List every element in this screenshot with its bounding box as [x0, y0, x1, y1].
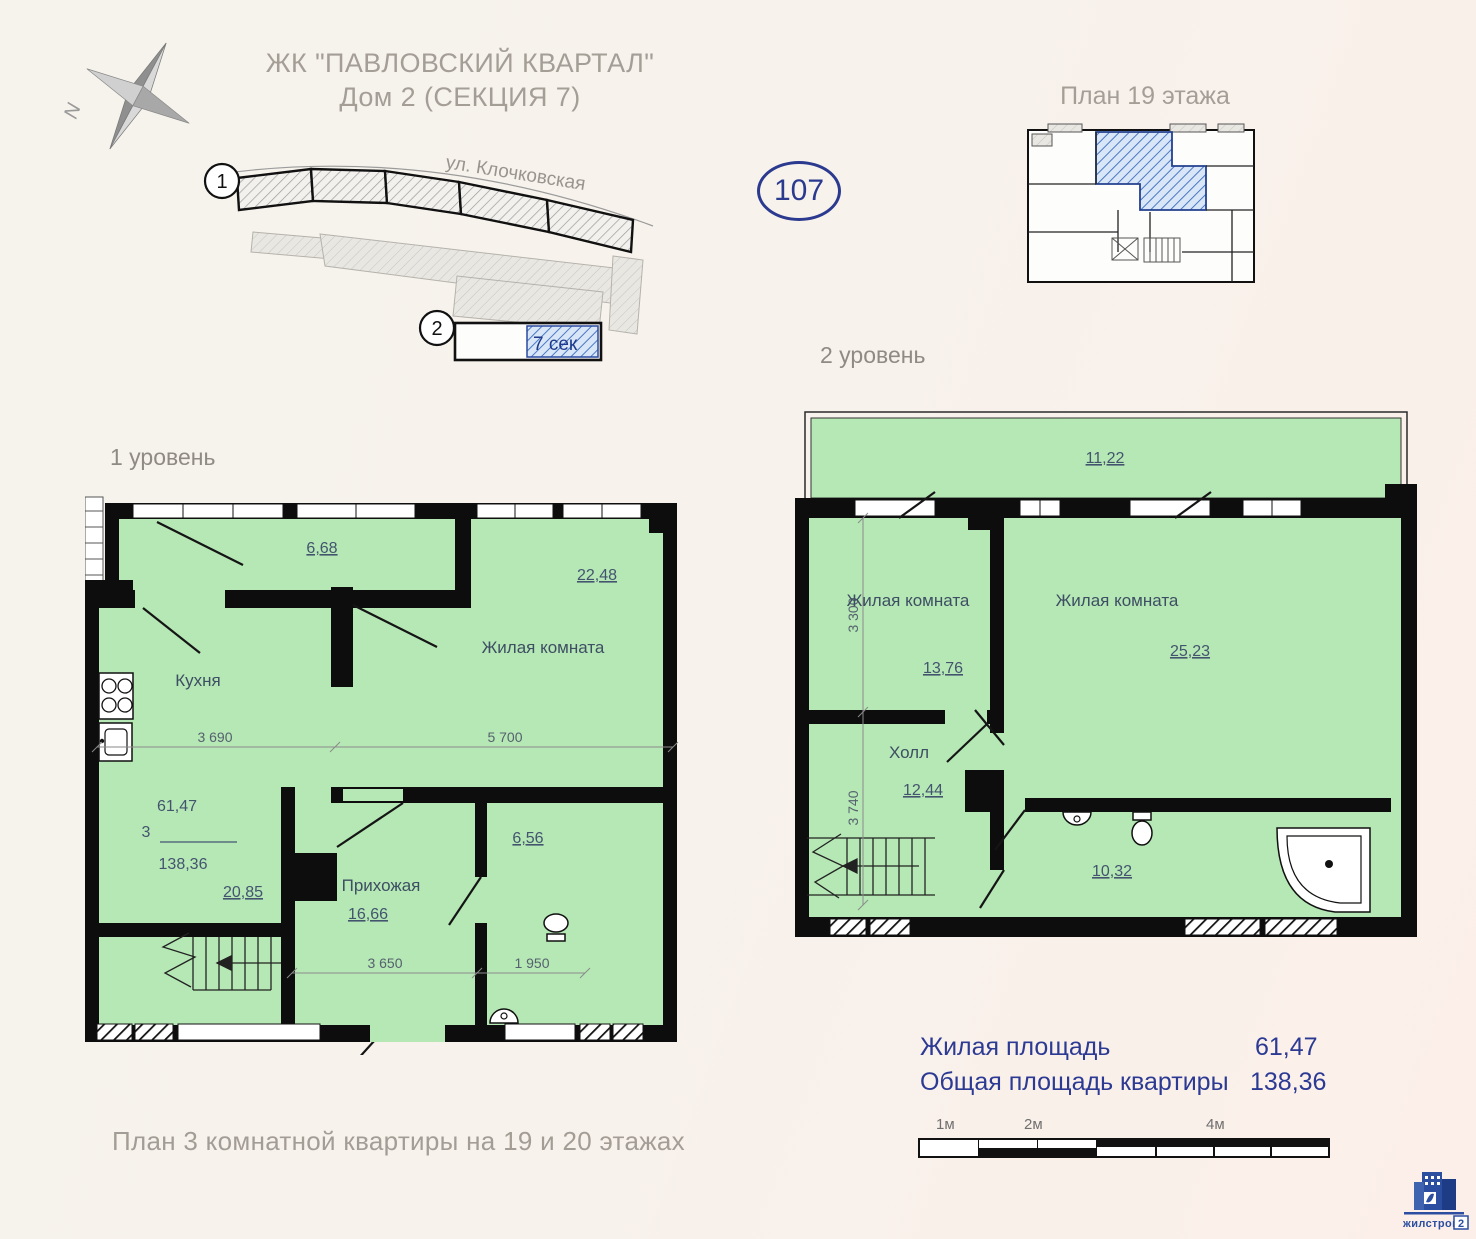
hallway-area: 16,66 — [348, 906, 388, 923]
living-area-value: 61,47 — [1255, 1033, 1318, 1062]
kitchen-label: Кухня — [175, 671, 221, 690]
building-subtitle: Дом 2 (СЕКЦИЯ 7) — [230, 82, 690, 113]
floor-plan-title: План 19 этажа — [1025, 82, 1265, 111]
hallway-label: Прихожая — [342, 876, 421, 895]
living-room-label: Жилая комната — [482, 638, 605, 657]
section-label: 7 сек — [533, 334, 578, 355]
living-room-2-area: 25,23 — [1170, 643, 1210, 660]
exterior-ladder — [85, 497, 103, 589]
scale-segment — [1037, 1140, 1096, 1156]
floorplan-sheet: N ЖК "ПАВЛОВСКИЙ КВАРТАЛ" Дом 2 (СЕКЦИЯ … — [0, 0, 1476, 1239]
floor-19-mini-plan — [1022, 120, 1262, 300]
total-area-value: 138,36 — [1250, 1068, 1326, 1097]
logo-building-icon — [1404, 1172, 1464, 1215]
scale-segment — [978, 1140, 1037, 1156]
hall-label: Холл — [889, 743, 929, 762]
level-2-plan: 3 300 3 740 11,22 Жилая комната 13,76 Жи… — [795, 400, 1427, 960]
stove-icon — [99, 673, 133, 719]
kitchen-sink-icon — [99, 723, 132, 761]
toilet-icon-l2 — [1132, 812, 1152, 845]
summary-total-area: 138,36 — [159, 856, 208, 873]
scale-4m-label: 4м — [1206, 1116, 1225, 1133]
level1-windows-top — [133, 504, 641, 518]
dim-kitchen-width: 3 690 — [197, 729, 232, 745]
level1-windows-bottom — [97, 1024, 643, 1042]
scale-segment — [1096, 1140, 1328, 1156]
scale-1m-label: 1м — [936, 1116, 955, 1133]
bathroom-area-l2: 10,32 — [1092, 863, 1132, 880]
terrace-area: 11,22 — [1086, 450, 1125, 467]
compass-rose-icon: N — [58, 28, 208, 163]
living-room-1-label: Жилая комната — [847, 591, 970, 610]
logo-name: жилстрой — [1402, 1218, 1459, 1230]
kitchen-living-area: 20,85 — [223, 884, 263, 901]
summary-living-area: 61,47 — [157, 798, 197, 815]
site-marker-1: 1 — [205, 164, 239, 198]
balcony-area: 6,68 — [306, 540, 337, 557]
hall-area: 12,44 — [903, 782, 943, 799]
complex-title: ЖК "ПАВЛОВСКИЙ КВАРТАЛ" — [230, 48, 690, 79]
developer-logo: жилстрой 2 — [1396, 1166, 1474, 1236]
bathroom-area-l1: 6,56 — [512, 830, 543, 847]
level-1-label: 1 уровень — [110, 444, 215, 471]
dim-hall-height: 3 740 — [845, 790, 861, 825]
dim-hall-width: 3 650 — [367, 955, 402, 971]
site-marker-2: 2 — [420, 311, 454, 345]
living-room-2-label: Жилая комната — [1056, 591, 1179, 610]
dim-bath-width: 1 950 — [514, 955, 549, 971]
compass-north-label: N — [60, 100, 86, 122]
living-room-1-area: 13,76 — [923, 660, 963, 677]
level-2-label: 2 уровень — [820, 342, 925, 369]
logo-number: 2 — [1458, 1218, 1464, 1230]
dim-living-width: 5 700 — [487, 729, 522, 745]
scale-bar-ruler — [918, 1138, 1330, 1158]
svg-text:1: 1 — [216, 171, 227, 193]
living-area-label: Жилая площадь — [920, 1033, 1110, 1062]
site-section-block: 7 сек — [455, 323, 601, 360]
toilet-icon — [544, 914, 568, 941]
site-plan: ул. Клочковская 7 сек 1 2 — [195, 138, 660, 378]
apartment-number-badge: 107 — [757, 161, 841, 221]
scale-2m-label: 2м — [1024, 1116, 1043, 1133]
sheet-caption: План 3 комнатной квартиры на 19 и 20 эта… — [112, 1126, 685, 1157]
scale-segment — [920, 1140, 978, 1156]
svg-text:2: 2 — [431, 318, 442, 340]
living-room-area: 22,48 — [577, 567, 617, 584]
scale-bar: 1м 2м 4м — [918, 1116, 1338, 1166]
level-1-plan: 3 690 5 700 3 650 1 950 6,68 22,48 Жилая… — [85, 495, 685, 1055]
total-area-label: Общая площадь квартиры — [920, 1068, 1229, 1097]
summary-rooms-count: 3 — [142, 824, 151, 841]
